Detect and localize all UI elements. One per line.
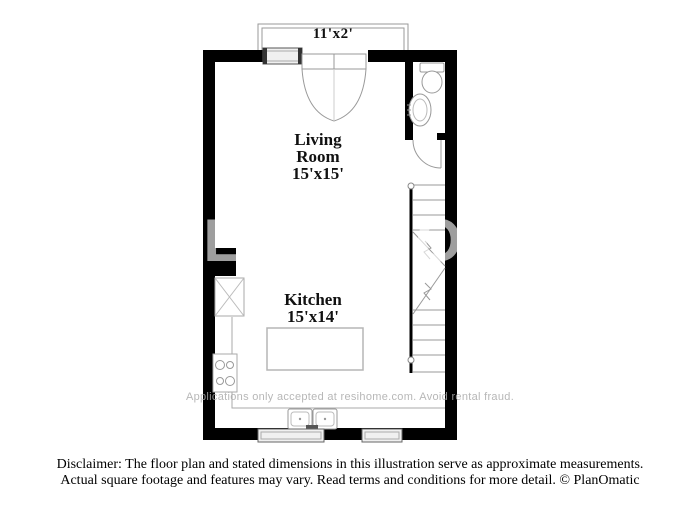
living-room-dimensions: 15'x15' [248, 165, 388, 182]
living-room-name-line2: Room [248, 148, 388, 165]
floor-plan-drawing [0, 0, 700, 509]
bathroom-door-icon [413, 140, 441, 168]
kitchen-sink-icon [288, 409, 337, 431]
living-room-label: Living Room 15'x15' [248, 131, 388, 182]
kitchen-label: Kitchen 15'x14' [243, 291, 383, 325]
bottom-window-left-icon [258, 429, 324, 442]
kitchen-name: Kitchen [243, 291, 383, 308]
disclaimer-line1: Disclaimer: The floor plan and stated di… [0, 457, 700, 473]
floor-plan-page: RESIHOME Applications only accepted at r… [0, 0, 700, 509]
stair-stringer [410, 183, 413, 373]
stove-icon [213, 354, 237, 392]
living-room-name-line1: Living [248, 131, 388, 148]
toilet-icon [420, 63, 444, 93]
kitchen-island [267, 328, 363, 370]
french-door-icon [302, 54, 366, 121]
top-window-icon [263, 48, 302, 64]
fraud-watermark: Applications only accepted at resihome.c… [0, 391, 700, 403]
disclaimer: Disclaimer: The floor plan and stated di… [0, 457, 700, 489]
chimney-block [215, 248, 236, 276]
refrigerator-icon [215, 278, 244, 316]
staircase-icon [408, 183, 445, 372]
kitchen-dimensions: 15'x14' [243, 308, 383, 325]
bottom-window-right-icon [362, 429, 402, 442]
disclaimer-line2: Actual square footage and features may v… [0, 473, 700, 489]
balcony-dimension-label: 11'x2' [258, 26, 408, 43]
